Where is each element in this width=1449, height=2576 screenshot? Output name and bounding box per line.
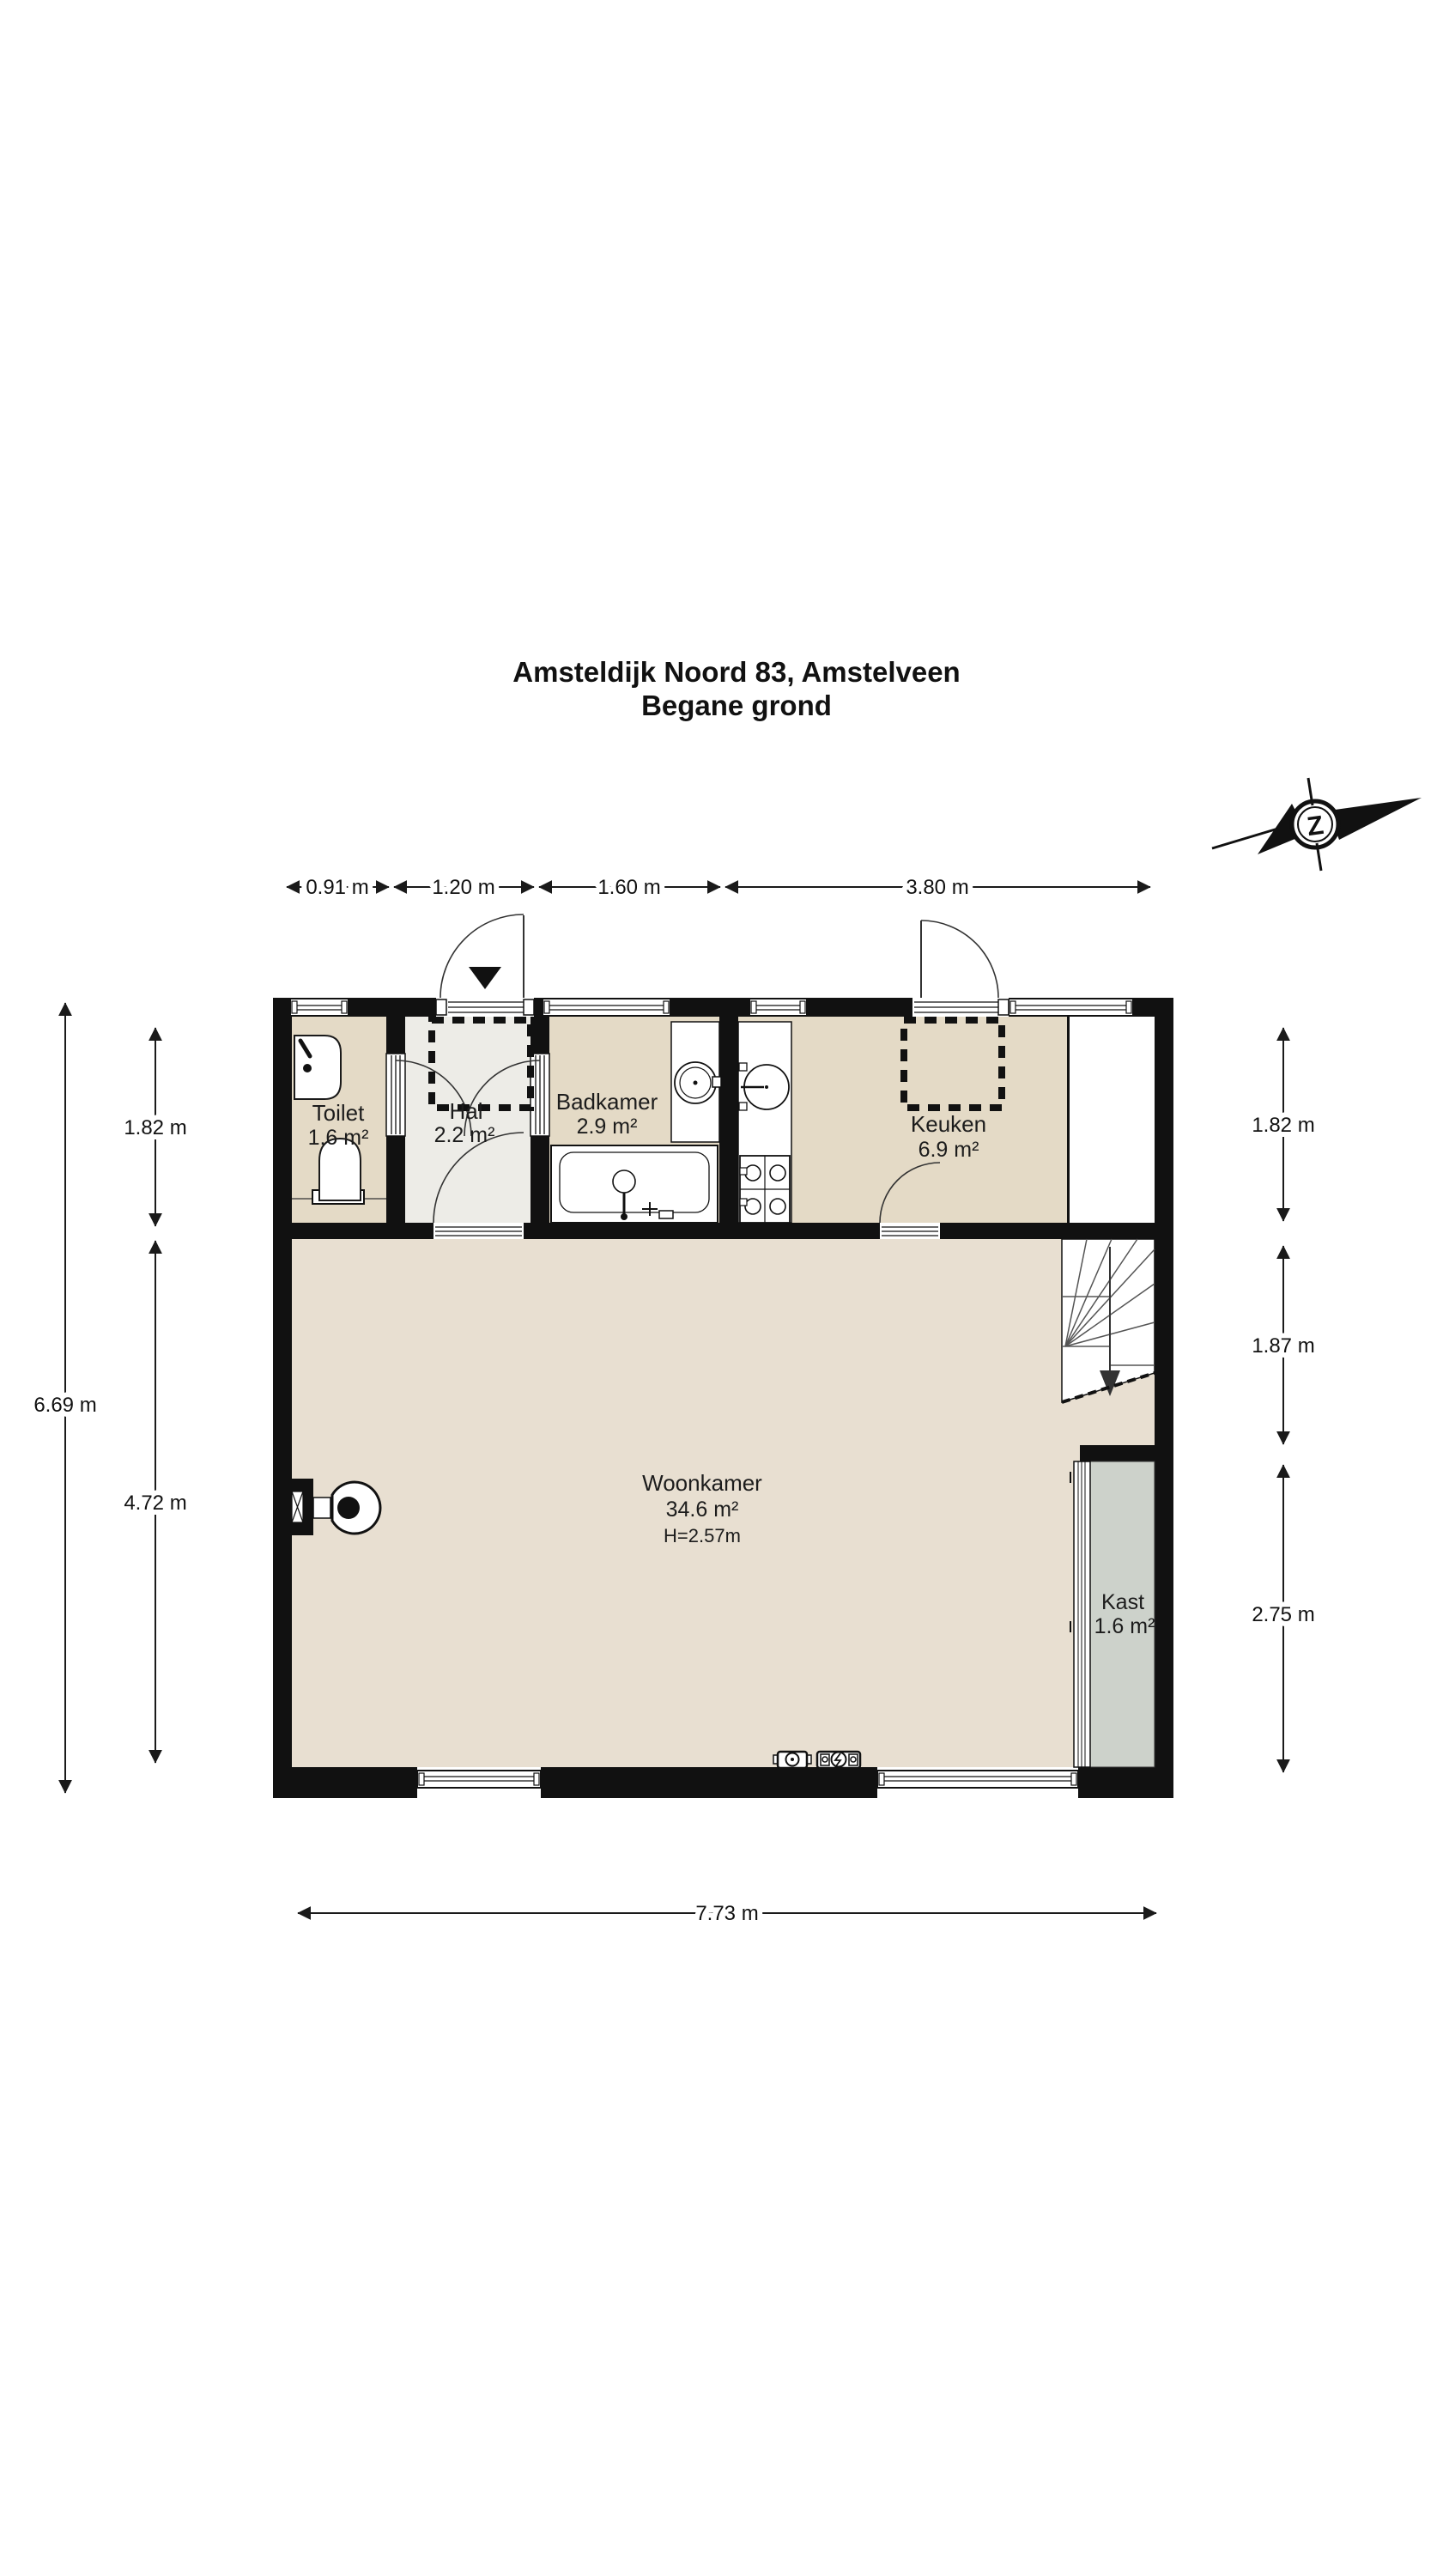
window-living-left [417,1767,541,1798]
water-meter-icon [773,1752,811,1768]
bathtub-icon [551,1145,718,1223]
wall-divider-left [273,1223,433,1239]
room-area-keuken: 6.9 m² [919,1138,979,1162]
dim-label-right-1: 1.82 m [1252,1114,1314,1137]
room-label-hal: Hal [449,1098,482,1124]
wall-divider-middle [524,1223,880,1239]
wall-toilet-hall-top [386,1017,405,1054]
room-area-woonkamer: 34.6 m² [666,1498,739,1522]
wall-divider-right [940,1223,1155,1239]
wall-west [273,998,292,1798]
room-label-kast: Kast [1101,1590,1144,1614]
window-kitchen-counter [749,999,807,1016]
kitchen-fixtures [738,1022,791,1223]
niche-border [1067,1017,1070,1223]
wall-closet-stub [1080,1445,1155,1461]
room-area-hal: 2.2 m² [434,1123,495,1147]
kitchen-sink-icon [739,1063,789,1110]
floorplan-page: Amsteldijk Noord 83, Amstelveen Begane g… [0,0,1449,2576]
dim-label-top-1: 0.91 m [306,876,368,899]
electric-meter-icon [817,1752,860,1768]
stair-niche [1070,1017,1155,1223]
dim-label-bottom: 7.73 m [695,1902,758,1925]
room-label-woonkamer: Woonkamer [642,1470,762,1496]
room-height-woonkamer: H=2.57m [664,1525,741,1546]
wall-toilet-hall-bottom [386,1136,405,1223]
dim-label-top-3: 1.60 m [597,876,660,899]
wall-hall-bath-bottom [530,1136,549,1223]
dim-label-top-2: 1.20 m [432,876,494,899]
room-label-badkamer: Badkamer [556,1089,658,1115]
floor-plan-figure: Amsteldijk Noord 83, Amstelveen Begane g… [0,0,1449,2576]
window-living-right [877,1767,1078,1798]
title-floor: Begane grond [641,690,832,721]
room-area-kast: 1.6 m² [1094,1614,1155,1638]
wall-bath-kitchen [719,1017,738,1223]
wall-east [1155,998,1173,1798]
dim-label-left-2: 4.72 m [124,1492,186,1515]
window-toilet [290,999,349,1016]
gas-hob-icon [740,1156,790,1223]
dim-label-right-3: 2.75 m [1252,1603,1314,1626]
window-kitchen [1009,999,1133,1016]
room-area-toilet: 1.6 m² [308,1126,369,1150]
room-label-keuken: Keuken [911,1111,986,1137]
title-address: Amsteldijk Noord 83, Amstelveen [512,656,960,688]
closet-sliding-door-icon [1074,1461,1090,1767]
dim-label-left-total: 6.69 m [33,1394,96,1417]
dim-label-right-2: 1.87 m [1252,1334,1314,1358]
room-label-toilet: Toilet [312,1100,365,1126]
room-area-badkamer: 2.9 m² [577,1115,638,1139]
dim-label-top-4: 3.80 m [906,876,968,899]
basin-drain-icon [303,1064,312,1072]
staircase [1062,1239,1155,1402]
window-bathroom [543,999,670,1016]
dim-label-left-1: 1.82 m [124,1116,186,1139]
